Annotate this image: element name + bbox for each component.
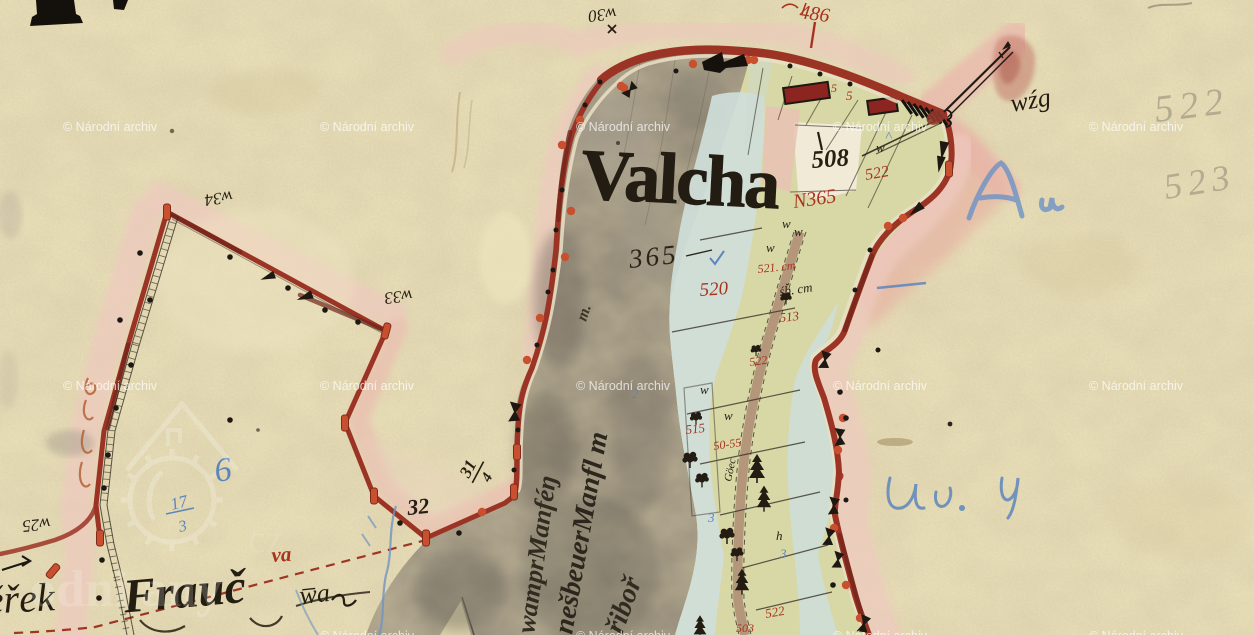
svg-text:© Národní archiv: © Národní archiv <box>576 629 671 635</box>
svg-text:365: 365 <box>626 239 679 274</box>
svg-text:w: w <box>766 240 775 255</box>
svg-text:© Národní archiv: © Národní archiv <box>833 379 928 393</box>
svg-text:32: 32 <box>405 493 430 520</box>
svg-text:© Národní archiv: © Národní archiv <box>63 120 158 134</box>
svg-text:3: 3 <box>779 546 787 561</box>
svg-text:520: 520 <box>699 278 729 301</box>
svg-text:w: w <box>794 224 803 239</box>
svg-text:5: 5 <box>831 81 837 95</box>
svg-text:© Národní archiv: © Národní archiv <box>1089 629 1184 635</box>
svg-text:© Národní archiv: © Národní archiv <box>833 120 928 134</box>
svg-text:© Národní archiv: © Národní archiv <box>576 120 671 134</box>
svg-text:w: w <box>782 216 791 231</box>
svg-text:3: 3 <box>707 510 715 525</box>
svg-text:© Národní archiv: © Národní archiv <box>1089 120 1184 134</box>
svg-text:odni any: odni any <box>30 561 222 618</box>
svg-text:© Národní archiv: © Národní archiv <box>1089 379 1184 393</box>
svg-text:503: 503 <box>736 621 754 635</box>
svg-text:Valcha: Valcha <box>579 134 781 224</box>
svg-text:h: h <box>776 528 783 543</box>
svg-text:© Národní archiv: © Národní archiv <box>833 629 928 635</box>
svg-text:5: 5 <box>846 88 853 103</box>
svg-text:cz: cz <box>248 516 284 561</box>
svg-text:w: w <box>700 382 709 397</box>
svg-text:© Národní archiv: © Národní archiv <box>576 379 671 393</box>
svg-text:© Národní archiv: © Národní archiv <box>63 379 158 393</box>
svg-text:513: 513 <box>779 308 800 325</box>
svg-text:© Národní archiv: © Národní archiv <box>320 379 415 393</box>
svg-text:h: h <box>737 574 744 589</box>
svg-text:w34: w34 <box>203 187 234 210</box>
svg-text:w33: w33 <box>383 286 413 308</box>
svg-text:508: 508 <box>811 144 851 174</box>
svg-text:© Národní archiv: © Národní archiv <box>320 629 415 635</box>
svg-text:© Národní archiv: © Národní archiv <box>320 120 415 134</box>
svg-text:w30: w30 <box>587 4 618 26</box>
svg-text:522: 522 <box>748 353 768 369</box>
svg-text:w: w <box>724 408 733 423</box>
svg-text:515: 515 <box>685 420 706 437</box>
svg-text:w25: w25 <box>21 514 51 536</box>
